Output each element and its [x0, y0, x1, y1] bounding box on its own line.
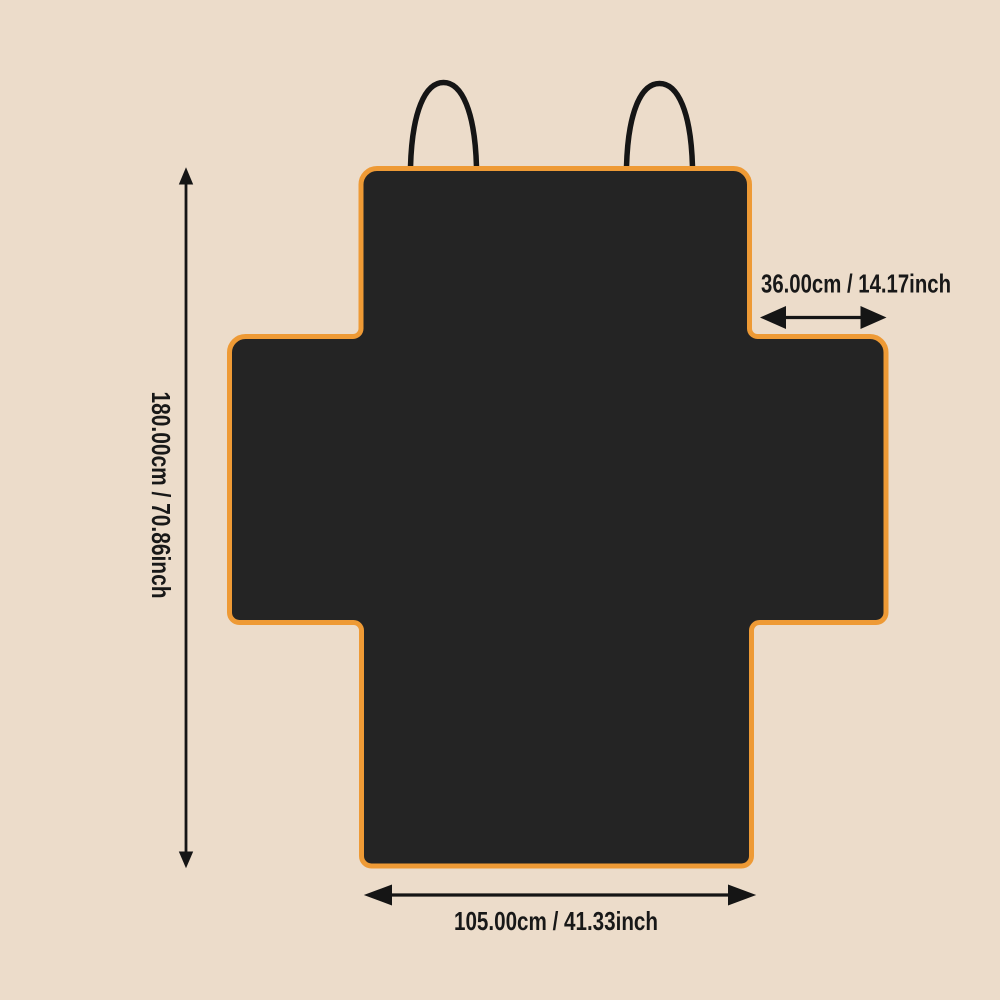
svg-text:36.00cm / 14.17inch: 36.00cm / 14.17inch	[761, 269, 951, 299]
svg-text:180.00cm / 70.86inch: 180.00cm / 70.86inch	[146, 392, 176, 599]
svg-text:105.00cm / 41.33inch: 105.00cm / 41.33inch	[454, 906, 658, 936]
